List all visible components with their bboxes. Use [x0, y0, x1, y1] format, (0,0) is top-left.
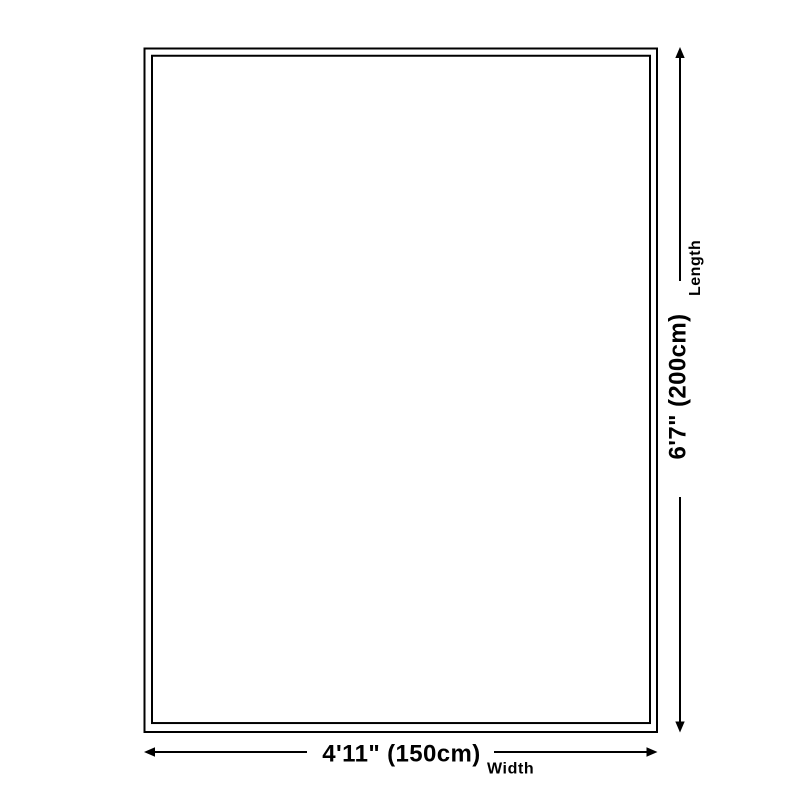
svg-text:4'11" (150cm): 4'11" (150cm) [322, 741, 480, 768]
svg-text:Length: Length [687, 240, 704, 296]
svg-text:Width: Width [487, 761, 534, 778]
svg-text:6'7" (200cm): 6'7" (200cm) [665, 314, 692, 460]
